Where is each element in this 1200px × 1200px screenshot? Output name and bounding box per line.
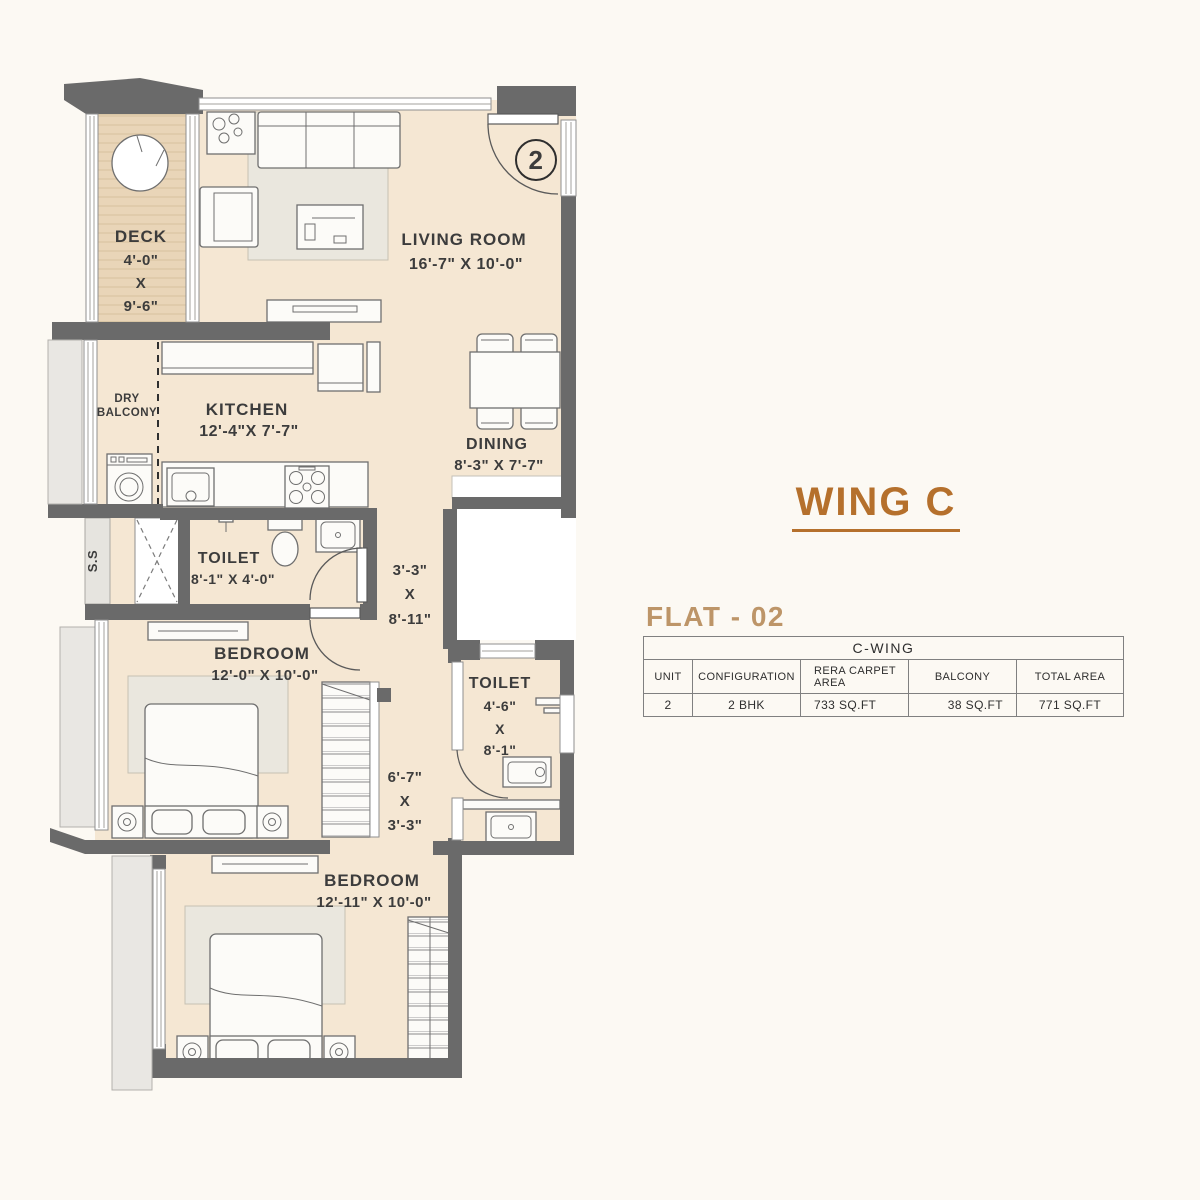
toilet2-dim-w: 4'-6" — [484, 698, 517, 714]
toilet1-label: TOILET — [198, 550, 261, 567]
sofa-icon — [258, 112, 400, 168]
dresser-icon — [212, 856, 318, 873]
washbasin-icon — [316, 517, 360, 552]
exterior-panel — [112, 856, 152, 1090]
tall-unit-icon — [367, 342, 380, 392]
shaft-label: S.S — [85, 550, 100, 572]
table-title: C-WING — [644, 637, 1124, 660]
passage2-dim-x: X — [400, 793, 411, 810]
deck-dim-x: X — [136, 275, 147, 292]
cell-unit: 2 — [644, 694, 693, 717]
toilet2-dim-h: 8'-1" — [484, 742, 517, 758]
bedroom1-window — [95, 620, 108, 830]
corner-table-icon — [207, 112, 255, 154]
dry-balcony-label-2: BALCONY — [97, 407, 157, 419]
washing-machine-icon — [107, 454, 152, 505]
col-unit: UNIT — [644, 660, 693, 694]
kitchen-label: KITCHEN — [206, 400, 289, 419]
page: 2 DECK 4'-0" X 9'-6" LIVING ROOM 16'-7" … — [0, 0, 1200, 1200]
passage1-dim-w: 3'-3" — [393, 562, 428, 579]
dry-balcony-label-1: DRY — [114, 393, 139, 405]
deck-dim-h: 9'-6" — [124, 298, 159, 315]
dry-balcony-window — [84, 340, 97, 504]
exterior-panel — [48, 340, 82, 504]
kitchen-sink-icon — [167, 468, 214, 506]
toilet1-dim: 8'-1" X 4'-0" — [191, 571, 275, 587]
bedroom2-window — [153, 869, 165, 1049]
bed-icon — [210, 934, 322, 1068]
living-room-dim: 16'-7" X 10'-0" — [409, 256, 523, 273]
exterior-panel — [60, 627, 95, 827]
entry-side-window — [561, 120, 576, 196]
area-table: C-WING UNIT CONFIGURATION RERA CARPET AR… — [643, 636, 1124, 717]
dining-ledge — [452, 476, 562, 498]
dining-table-icon — [470, 352, 560, 408]
bedroom2-label: BEDROOM — [324, 871, 420, 890]
toilet2-dim-x: X — [495, 721, 505, 737]
deck-dim-w: 4'-0" — [124, 252, 159, 269]
table-header-row: UNIT CONFIGURATION RERA CARPET AREA BALC… — [644, 660, 1124, 694]
bedroom1-dim: 12'-0" X 10'-0" — [211, 667, 318, 684]
living-room-label: LIVING ROOM — [401, 230, 526, 249]
cell-balcony: 38 SQ.FT — [909, 694, 1017, 717]
armchair-icon — [200, 187, 258, 247]
toilet2-left-wall — [452, 798, 463, 840]
bedroom1-label: BEDROOM — [214, 644, 310, 663]
flat-title: FLAT - 02 — [646, 603, 785, 631]
cell-total-area: 771 SQ.FT — [1017, 694, 1124, 717]
bedroom2-dim: 12'-11" X 10'-0" — [316, 894, 431, 911]
passage1-dim-x: X — [405, 586, 416, 603]
passage2-dim-w: 6'-7" — [388, 769, 423, 786]
dresser-icon — [148, 622, 248, 640]
deck-table-icon — [112, 135, 168, 191]
exterior-notch — [457, 509, 576, 640]
passage1-dim-h: 8'-11" — [389, 611, 432, 628]
deck-label: DECK — [115, 227, 167, 246]
deck-living-window — [186, 114, 199, 322]
unit-number: 2 — [529, 145, 544, 175]
wing-title-text: WING C — [792, 482, 961, 532]
dining-label: DINING — [466, 436, 528, 453]
wing-title: WING C — [745, 482, 1007, 532]
fridge-icon — [318, 344, 363, 391]
toilet2-side-window — [560, 695, 574, 753]
kitchen-dim: 12'-4"X 7'-7" — [199, 423, 299, 440]
hob-icon — [285, 466, 329, 508]
cell-rera-carpet-area: 733 SQ.FT — [801, 694, 909, 717]
table-data-row: 2 2 BHK 733 SQ.FT 38 SQ.FT 771 SQ.FT — [644, 694, 1124, 717]
coffee-table-icon — [297, 205, 363, 249]
wardrobe-icon — [408, 917, 452, 1067]
deck-railing — [86, 114, 98, 322]
col-rera-carpet-area: RERA CARPET AREA — [801, 660, 909, 694]
cell-configuration: 2 BHK — [693, 694, 801, 717]
dining-dim: 8'-3" X 7'-7" — [454, 457, 544, 474]
bed-icon — [145, 704, 258, 838]
kitchen-counter-top — [162, 342, 313, 374]
passage2-dim-h: 3'-3" — [388, 817, 423, 834]
col-balcony: BALCONY — [909, 660, 1017, 694]
vanity-icon — [503, 757, 551, 787]
col-total-area: TOTAL AREA — [1017, 660, 1124, 694]
tv-console-icon — [267, 300, 381, 322]
toilet2-label: TOILET — [469, 675, 532, 692]
floor-plan: 2 DECK 4'-0" X 9'-6" LIVING ROOM 16'-7" … — [0, 0, 1200, 1200]
toilet2-left-wall — [452, 662, 463, 750]
col-configuration: CONFIGURATION — [693, 660, 801, 694]
